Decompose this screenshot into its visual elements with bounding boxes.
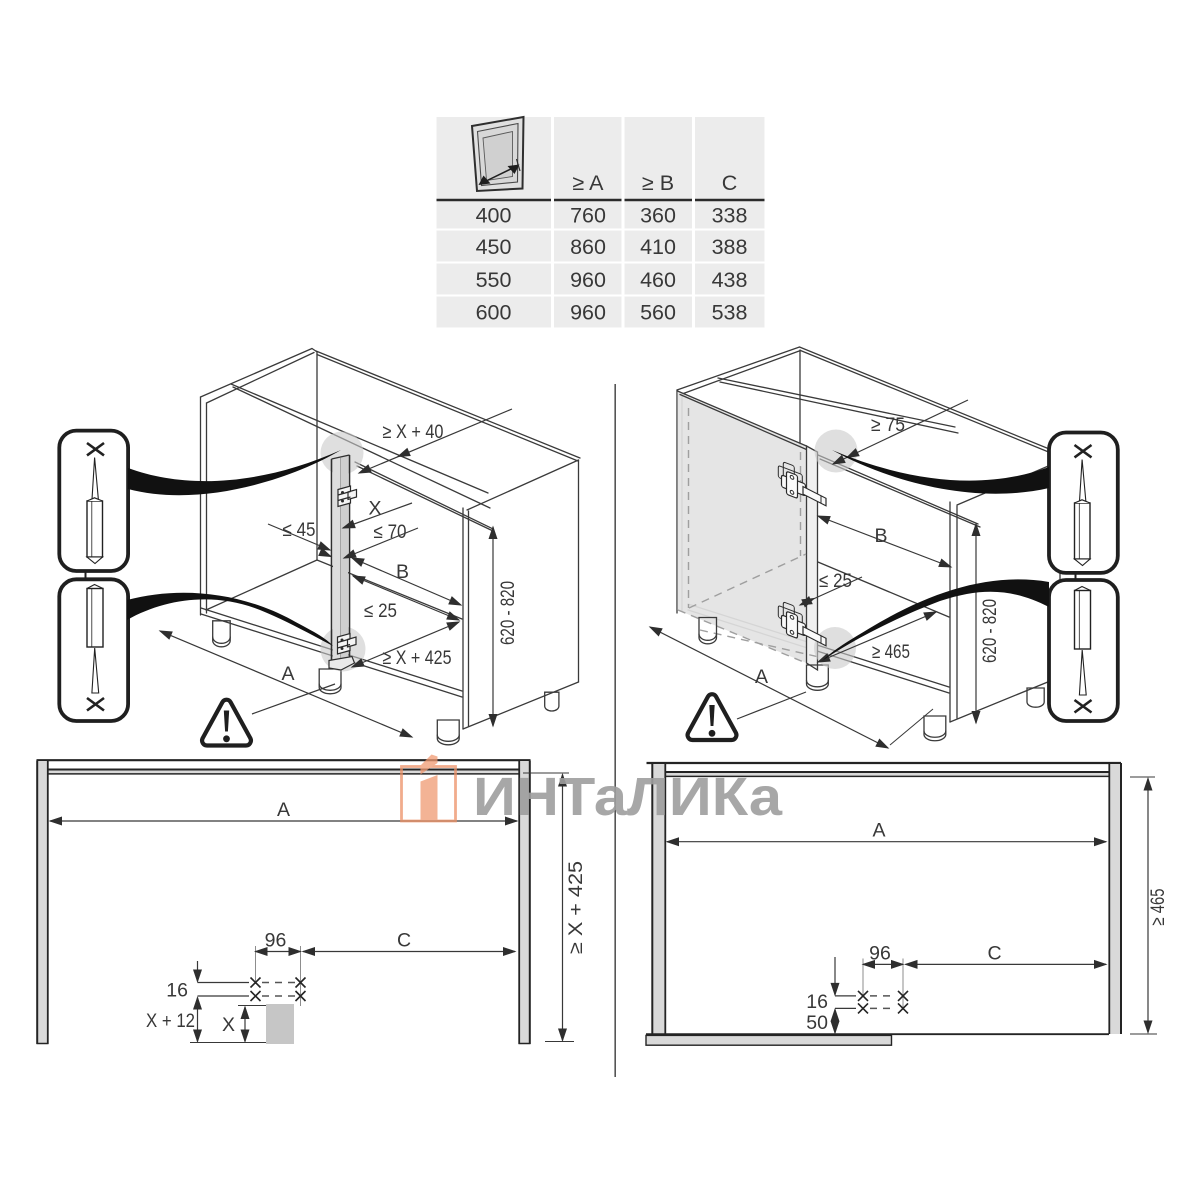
- svg-text:550: 550: [476, 268, 512, 292]
- svg-text:388: 388: [712, 235, 748, 259]
- svg-text:620 - 820: 620 - 820: [497, 581, 519, 645]
- svg-text:400: 400: [476, 204, 512, 228]
- svg-text:≥ A: ≥ A: [573, 171, 605, 195]
- svg-text:≤ 45: ≤ 45: [283, 519, 316, 541]
- svg-text:A: A: [755, 666, 768, 688]
- svg-text:≤ 25: ≤ 25: [819, 570, 852, 592]
- svg-text:A: A: [277, 799, 290, 821]
- svg-text:X: X: [368, 498, 381, 520]
- svg-text:600: 600: [476, 301, 512, 325]
- svg-text:≥ 465: ≥ 465: [1147, 888, 1169, 925]
- svg-text:760: 760: [570, 204, 606, 228]
- svg-text:ИНТаЛИКа: ИНТаЛИКа: [473, 767, 783, 827]
- svg-text:960: 960: [570, 268, 606, 292]
- svg-text:438: 438: [712, 268, 748, 292]
- svg-text:C: C: [987, 943, 1001, 965]
- svg-text:16: 16: [166, 980, 188, 1002]
- svg-text:460: 460: [640, 268, 676, 292]
- svg-text:96: 96: [265, 930, 287, 952]
- svg-text:16: 16: [806, 991, 828, 1013]
- svg-text:96: 96: [869, 943, 891, 965]
- svg-text:538: 538: [712, 301, 748, 325]
- svg-text:960: 960: [570, 301, 606, 325]
- svg-text:450: 450: [476, 235, 512, 259]
- svg-text:560: 560: [640, 301, 676, 325]
- svg-text:A: A: [872, 820, 885, 842]
- svg-text:≤ 70: ≤ 70: [374, 521, 407, 543]
- svg-text:B: B: [396, 561, 409, 583]
- svg-text:A: A: [281, 663, 294, 685]
- svg-text:338: 338: [712, 204, 748, 228]
- svg-text:≥ 75: ≥ 75: [871, 414, 905, 436]
- svg-text:860: 860: [570, 235, 606, 259]
- svg-text:C: C: [397, 930, 411, 952]
- svg-text:≥ X + 40: ≥ X + 40: [383, 421, 444, 443]
- svg-text:≥ X + 425: ≥ X + 425: [383, 647, 452, 669]
- svg-text:≥ 465: ≥ 465: [872, 641, 910, 663]
- svg-text:≤ 25: ≤ 25: [364, 600, 397, 622]
- svg-text:≥ X + 425: ≥ X + 425: [565, 861, 587, 954]
- svg-text:620 - 820: 620 - 820: [979, 599, 1001, 663]
- svg-text:410: 410: [640, 235, 676, 259]
- svg-text:C: C: [722, 171, 738, 195]
- svg-text:≥ B: ≥ B: [642, 171, 674, 195]
- svg-text:360: 360: [640, 204, 676, 228]
- svg-text:50: 50: [806, 1012, 828, 1034]
- svg-text:B: B: [874, 525, 887, 547]
- svg-text:X: X: [222, 1014, 235, 1036]
- svg-text:X + 12: X + 12: [146, 1010, 195, 1032]
